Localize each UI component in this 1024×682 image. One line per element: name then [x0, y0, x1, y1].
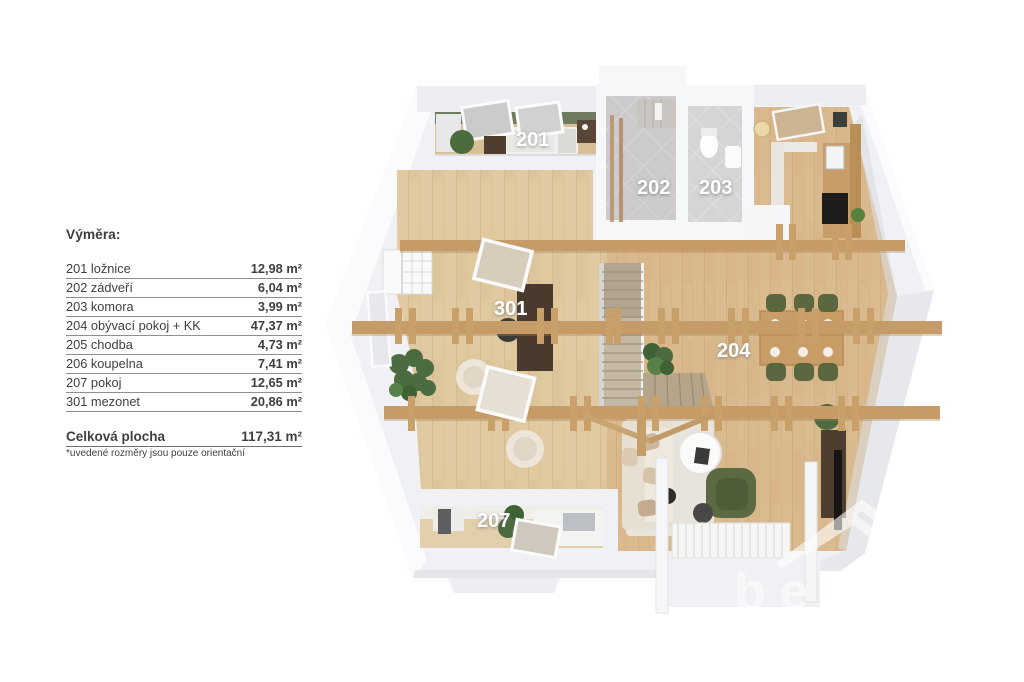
svg-text:201: 201 [516, 129, 549, 151]
svg-text:202: 202 [637, 177, 670, 199]
svg-text:207: 207 [477, 510, 510, 532]
svg-text:301: 301 [494, 298, 527, 320]
svg-text:204: 204 [717, 340, 751, 362]
svg-text:be: be [734, 563, 823, 621]
svg-text:203: 203 [699, 177, 732, 199]
